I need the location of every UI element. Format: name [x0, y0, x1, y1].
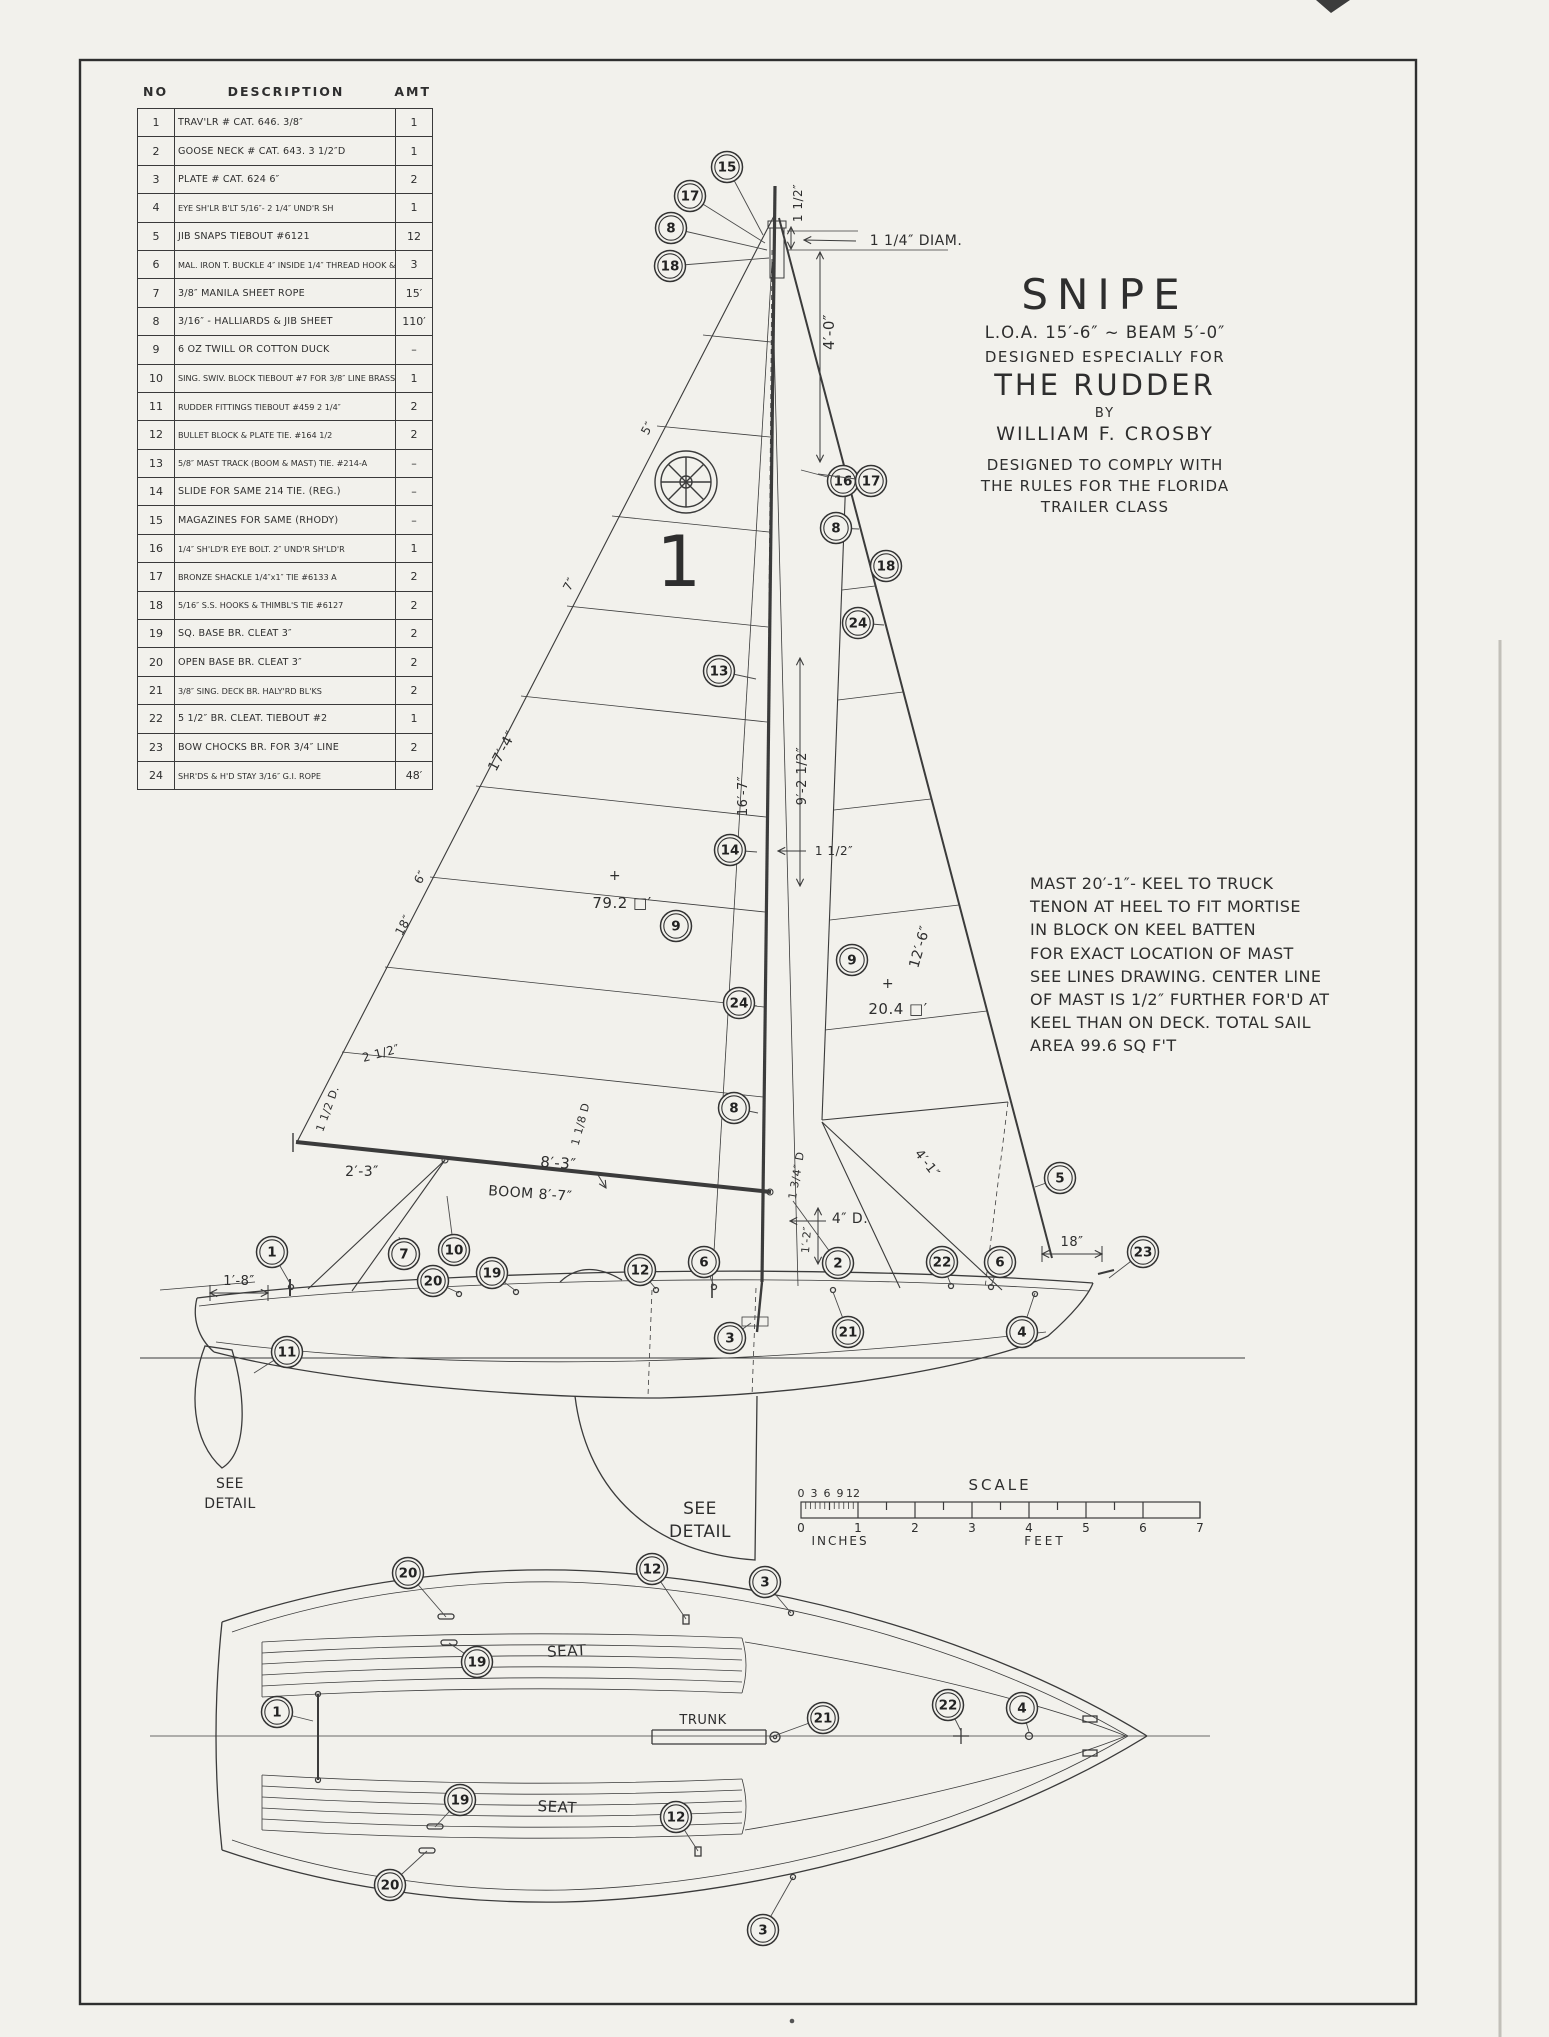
- trunk-plan: [652, 1730, 766, 1744]
- dim-label: SEAT: [547, 1641, 587, 1661]
- part-desc: OPEN BASE BR. CLEAT 3″: [175, 648, 396, 676]
- parts-table-row: 185/16″ S.S. HOOKS & THIMBL'S TIE #61272: [138, 591, 433, 619]
- part-no: 19: [138, 620, 175, 648]
- part-amt: 1: [396, 137, 433, 165]
- dim-label: 20.4 □′: [868, 1000, 927, 1018]
- dim-label: 1 1/2″: [791, 184, 805, 222]
- deck-plan: [150, 1570, 1210, 1902]
- header-amt: AMT: [385, 84, 433, 99]
- callout-19: 19: [477, 1258, 517, 1292]
- dim-label: SEE: [216, 1476, 244, 1492]
- callout-8: 8: [656, 213, 768, 251]
- callout-9: 9: [837, 945, 868, 976]
- part-desc: 5/16″ S.S. HOOKS & THIMBL'S TIE #6127: [175, 591, 396, 619]
- part-amt: –: [396, 449, 433, 477]
- callout-12: 12: [637, 1554, 687, 1620]
- scale-feet-label: FEET: [1000, 1534, 1090, 1548]
- svg-text:19: 19: [483, 1266, 502, 1282]
- parts-table-row: 213/8″ SING. DECK BR. HALY'RD BL'KS2: [138, 676, 433, 704]
- part-amt: 1: [396, 109, 433, 137]
- part-no: 5: [138, 222, 175, 250]
- parts-table-row: 96 OZ TWILL OR COTTON DUCK–: [138, 336, 433, 364]
- parts-table-row: 24SHR'DS & H'D STAY 3/16″ G.I. ROPE48′: [138, 761, 433, 789]
- part-desc: MAGAZINES FOR SAME (RHODY): [175, 506, 396, 534]
- callout-3: 3: [748, 1877, 794, 1946]
- callout-12: 12: [625, 1255, 657, 1290]
- deck-plan-hardware: [419, 1611, 1097, 1880]
- loa-beam: L.O.A. 15′-6″ ~ BEAM 5′-0″: [940, 323, 1270, 342]
- svg-text:15: 15: [718, 160, 737, 176]
- svg-text:5: 5: [1082, 1521, 1090, 1535]
- callout-18: 18: [655, 251, 770, 282]
- part-amt: 15′: [396, 279, 433, 307]
- part-desc: 3/16″ - HALLIARDS & JIB SHEET: [175, 307, 396, 335]
- mast-note: MAST 20′-1″- KEEL TO TRUCK TENON AT HEEL…: [1030, 872, 1415, 1058]
- svg-text:21: 21: [839, 1325, 858, 1341]
- jib-leech: [822, 474, 846, 1120]
- parts-table-row: 73/8″ MANILA SHEET ROPE15′: [138, 279, 433, 307]
- deck-hardware-dots: [289, 1284, 1038, 1297]
- svg-text:14: 14: [721, 843, 740, 859]
- part-amt: 2: [396, 733, 433, 761]
- svg-text:0: 0: [797, 1521, 805, 1535]
- svg-text:2: 2: [833, 1256, 842, 1272]
- svg-text:9: 9: [671, 919, 680, 935]
- part-amt: 1: [396, 364, 433, 392]
- svg-text:8: 8: [729, 1101, 738, 1117]
- callout-7: 7: [389, 1237, 420, 1270]
- callout-17: 17: [675, 181, 766, 244]
- parts-table-row: 1TRAV'LR # CAT. 646. 3/8″1: [138, 109, 433, 137]
- svg-text:11: 11: [278, 1345, 297, 1361]
- svg-text:22: 22: [939, 1698, 958, 1714]
- scan-dot: [790, 2019, 795, 2024]
- scale-ticks: [806, 1502, 1200, 1518]
- part-amt: –: [396, 478, 433, 506]
- part-amt: 110′: [396, 307, 433, 335]
- dim-label: 18″: [392, 912, 414, 937]
- callout-23: 23: [1109, 1237, 1159, 1279]
- part-amt: 1: [396, 534, 433, 562]
- coaming: [560, 1269, 622, 1282]
- svg-text:1: 1: [854, 1521, 862, 1535]
- part-no: 16: [138, 534, 175, 562]
- callout-15: 15: [712, 152, 764, 236]
- part-no: 11: [138, 392, 175, 420]
- part-desc: 1/4″ SH'LD'R EYE BOLT. 2″ UND'R SH'LD'R: [175, 534, 396, 562]
- designed-for: DESIGNED ESPECIALLY FOR: [940, 348, 1270, 366]
- plan-sheet: 03691201234567 1 1/2″1 1/4″ DIAM.4′-0″5″…: [0, 0, 1549, 2037]
- dim-label: 8′-3″: [540, 1153, 577, 1173]
- dim-label: BOOM 8′-7″: [488, 1183, 573, 1205]
- svg-text:0: 0: [798, 1487, 805, 1500]
- seat-planks-top: [262, 1634, 746, 1697]
- svg-text:7: 7: [399, 1247, 408, 1263]
- callout-24: 24: [843, 608, 885, 639]
- part-desc: GOOSE NECK # CAT. 643. 3 1/2″D: [175, 137, 396, 165]
- parts-table-row: 17BRONZE SHACKLE 1/4″x1″ TIE #6133 A2: [138, 563, 433, 591]
- part-amt: –: [396, 336, 433, 364]
- transom: [195, 1298, 214, 1352]
- part-no: 20: [138, 648, 175, 676]
- parts-table-row: 2GOOSE NECK # CAT. 643. 3 1/2″D1: [138, 137, 433, 165]
- callout-24: 24: [724, 988, 758, 1019]
- part-desc: SING. SWIV. BLOCK TIEBOUT #7 FOR 3/8″ LI…: [175, 364, 396, 392]
- parts-table-row: 12BULLET BLOCK & PLATE TIE. #164 1/22: [138, 421, 433, 449]
- magazine-name: THE RUDDER: [940, 368, 1270, 402]
- part-desc: 5 1/2″ BR. CLEAT. TIEBOUT #2: [175, 705, 396, 733]
- dim-label: DETAIL: [669, 1522, 731, 1542]
- mast: [762, 186, 775, 1282]
- svg-text:6: 6: [995, 1255, 1004, 1271]
- parts-table-row: 5JIB SNAPS TIEBOUT #612112: [138, 222, 433, 250]
- svg-text:3: 3: [760, 1575, 769, 1591]
- part-amt: 2: [396, 676, 433, 704]
- parts-table-row: 23BOW CHOCKS BR. FOR 3/4″ LINE2: [138, 733, 433, 761]
- part-amt: 1: [396, 194, 433, 222]
- part-amt: 3: [396, 250, 433, 278]
- svg-text:19: 19: [468, 1655, 487, 1671]
- dim-label: TRUNK: [678, 1713, 726, 1728]
- part-desc: 3/8″ SING. DECK BR. HALY'RD BL'KS: [175, 676, 396, 704]
- part-desc: MAL. IRON T. BUCKLE 4″ INSIDE 1/4″ THREA…: [175, 250, 396, 278]
- callout-14: 14: [715, 835, 758, 866]
- part-desc: 3/8″ MANILA SHEET ROPE: [175, 279, 396, 307]
- callout-3: 3: [715, 1323, 752, 1354]
- dim-label: 1 3/4″ D: [786, 1150, 807, 1200]
- part-no: 3: [138, 165, 175, 193]
- dim-label: +: [609, 868, 621, 884]
- svg-text:12: 12: [667, 1810, 686, 1826]
- dim-label: 12′-6″: [907, 924, 934, 970]
- part-desc: RUDDER FITTINGS TIEBOUT #459 2 1/4″: [175, 392, 396, 420]
- part-desc: BOW CHOCKS BR. FOR 3/4″ LINE: [175, 733, 396, 761]
- part-no: 14: [138, 478, 175, 506]
- part-desc: SLIDE FOR SAME 214 TIE. (REG.): [175, 478, 396, 506]
- svg-text:19: 19: [451, 1793, 470, 1809]
- parts-table-header: NO DESCRIPTION AMT: [137, 84, 433, 99]
- svg-text:24: 24: [730, 996, 749, 1012]
- dim-label: 1 1/2″: [815, 844, 853, 858]
- dim-label: 6″: [411, 868, 430, 886]
- dim-label: 5″: [638, 419, 657, 437]
- svg-text:10: 10: [445, 1243, 464, 1259]
- parts-table-row: 14SLIDE FOR SAME 214 TIE. (REG.)–: [138, 478, 433, 506]
- part-no: 9: [138, 336, 175, 364]
- parts-table-row: 3PLATE # CAT. 624 6″2: [138, 165, 433, 193]
- part-no: 21: [138, 676, 175, 704]
- dim-label: 2 1/2″: [361, 1041, 402, 1064]
- callout-22: 22: [933, 1690, 964, 1732]
- svg-text:3: 3: [968, 1521, 976, 1535]
- dim-label: 2′-3″: [345, 1164, 379, 1180]
- dim-label: 18″: [1061, 1235, 1084, 1250]
- trunk-dashed-aft: [752, 1288, 756, 1396]
- callout-19: 19: [449, 1643, 493, 1678]
- dim-label: 4′-0″: [820, 314, 838, 350]
- svg-text:20: 20: [399, 1566, 418, 1582]
- scale-inches-label: INCHES: [795, 1534, 885, 1548]
- part-desc: BRONZE SHACKLE 1/4″x1″ TIE #6133 A: [175, 563, 396, 591]
- keel-line: [214, 1283, 1093, 1398]
- svg-text:3: 3: [811, 1487, 818, 1500]
- parts-table-row: 4EYE SH'LR B'LT 5/16″- 2 1/4″ UND'R SH1: [138, 194, 433, 222]
- svg-text:18: 18: [661, 259, 680, 275]
- callout-10: 10: [439, 1196, 470, 1266]
- parts-table: 1TRAV'LR # CAT. 646. 3/8″12GOOSE NECK # …: [137, 108, 433, 790]
- part-amt: –: [396, 506, 433, 534]
- svg-text:20: 20: [424, 1274, 443, 1290]
- svg-text:17: 17: [681, 189, 700, 205]
- svg-text:3: 3: [758, 1923, 767, 1939]
- svg-text:7: 7: [1196, 1521, 1204, 1535]
- part-no: 10: [138, 364, 175, 392]
- part-amt: 2: [396, 165, 433, 193]
- part-no: 24: [138, 761, 175, 789]
- part-desc: EYE SH'LR B'LT 5/16″- 2 1/4″ UND'R SH: [175, 194, 396, 222]
- svg-text:12: 12: [631, 1263, 650, 1279]
- part-amt: 48′: [396, 761, 433, 789]
- callout-4: 4: [1007, 1693, 1038, 1733]
- part-desc: 5/8″ MAST TRACK (BOOM & MAST) TIE. #214-…: [175, 449, 396, 477]
- part-desc: JIB SNAPS TIEBOUT #6121: [175, 222, 396, 250]
- svg-text:6: 6: [699, 1255, 708, 1271]
- callout-4: 4: [1007, 1293, 1038, 1348]
- parts-table-row: 11RUDDER FITTINGS TIEBOUT #459 2 1/4″2: [138, 392, 433, 420]
- parts-table-row: 6MAL. IRON T. BUCKLE 4″ INSIDE 1/4″ THRE…: [138, 250, 433, 278]
- boat-name: SNIPE: [940, 270, 1270, 319]
- title-block: SNIPE L.O.A. 15′-6″ ~ BEAM 5′-0″ DESIGNE…: [940, 270, 1270, 518]
- part-amt: 1: [396, 705, 433, 733]
- dim-label: 7″: [560, 575, 579, 593]
- callout-21: 21: [771, 1703, 839, 1738]
- part-amt: 2: [396, 620, 433, 648]
- callout-6: 6: [985, 1247, 1016, 1287]
- part-no: 7: [138, 279, 175, 307]
- part-amt: 2: [396, 563, 433, 591]
- callout-11: 11: [254, 1337, 303, 1374]
- dim-label: 16′-7″: [736, 776, 751, 816]
- part-desc: BULLET BLOCK & PLATE TIE. #164 1/2: [175, 421, 396, 449]
- sail-emblem: [655, 451, 717, 513]
- svg-text:18: 18: [877, 559, 896, 575]
- callout-8: 8: [821, 513, 860, 544]
- part-no: 18: [138, 591, 175, 619]
- part-no: 23: [138, 733, 175, 761]
- part-amt: 2: [396, 392, 433, 420]
- part-no: 15: [138, 506, 175, 534]
- part-no: 6: [138, 250, 175, 278]
- svg-text:23: 23: [1134, 1245, 1153, 1261]
- svg-text:22: 22: [933, 1255, 952, 1271]
- parts-table-row: 19SQ. BASE BR. CLEAT 3″2: [138, 620, 433, 648]
- svg-text:6: 6: [1139, 1521, 1147, 1535]
- part-no: 1: [138, 109, 175, 137]
- parts-table-row: 225 1/2″ BR. CLEAT. TIEBOUT #21: [138, 705, 433, 733]
- svg-text:6: 6: [824, 1487, 831, 1500]
- svg-text:3: 3: [725, 1331, 734, 1347]
- dim-label: 1 1/8 D: [569, 1101, 593, 1147]
- dim-label: SEE: [683, 1499, 717, 1519]
- callout-1: 1: [262, 1697, 314, 1728]
- dim-label: 4′-1″: [911, 1147, 942, 1181]
- svg-text:5: 5: [1055, 1171, 1064, 1187]
- part-no: 8: [138, 307, 175, 335]
- dim-label: DETAIL: [204, 1496, 256, 1512]
- svg-text:9: 9: [837, 1487, 844, 1500]
- part-no: 2: [138, 137, 175, 165]
- jib-foot: [822, 1102, 1008, 1120]
- main-luff: [764, 250, 772, 1186]
- svg-text:21: 21: [814, 1711, 833, 1727]
- part-desc: TRAV'LR # CAT. 646. 3/8″: [175, 109, 396, 137]
- part-no: 4: [138, 194, 175, 222]
- callout-19: 19: [435, 1785, 476, 1828]
- callout-8: 8: [719, 1093, 759, 1124]
- callout-20: 20: [418, 1266, 460, 1297]
- svg-text:2: 2: [911, 1521, 919, 1535]
- parts-table-row: 83/16″ - HALLIARDS & JIB SHEET110′: [138, 307, 433, 335]
- parts-table-row: 10SING. SWIV. BLOCK TIEBOUT #7 FOR 3/8″ …: [138, 364, 433, 392]
- svg-text:24: 24: [849, 616, 868, 632]
- callout-20: 20: [375, 1851, 428, 1901]
- dim-label: 1 1/4″ DIAM.: [870, 233, 963, 249]
- dim-label: 4″ D.: [832, 1211, 868, 1227]
- callout-16: 16: [801, 466, 859, 497]
- part-amt: 2: [396, 648, 433, 676]
- svg-text:12: 12: [643, 1562, 662, 1578]
- svg-text:9: 9: [847, 953, 856, 969]
- dim-label: 79.2 □′: [592, 894, 651, 912]
- scan-corner-mark: [1316, 0, 1350, 13]
- callout-12: 12: [661, 1802, 699, 1852]
- by-label: BY: [940, 406, 1270, 421]
- svg-text:8: 8: [666, 221, 675, 237]
- part-desc: PLATE # CAT. 624 6″: [175, 165, 396, 193]
- dim-label: 9′-2 1/2″: [795, 747, 810, 806]
- part-desc: 6 OZ TWILL OR COTTON DUCK: [175, 336, 396, 364]
- scale-bar: [801, 1502, 1200, 1518]
- dim-label: 1′-8″: [223, 1274, 255, 1289]
- svg-text:1: 1: [272, 1705, 281, 1721]
- svg-text:20: 20: [381, 1878, 400, 1894]
- parts-table-row: 20OPEN BASE BR. CLEAT 3″2: [138, 648, 433, 676]
- part-no: 13: [138, 449, 175, 477]
- callout-1: 1: [257, 1237, 292, 1286]
- svg-text:4: 4: [1017, 1325, 1026, 1341]
- bow-chock: [1098, 1270, 1114, 1274]
- dim-label: +: [882, 976, 894, 992]
- dim-label: 1′-2″: [799, 1226, 814, 1254]
- svg-text:4: 4: [1017, 1701, 1026, 1717]
- scale-title: SCALE: [940, 1476, 1060, 1494]
- part-desc: SQ. BASE BR. CLEAT 3″: [175, 620, 396, 648]
- designer-name: WILLIAM F. CROSBY: [940, 423, 1270, 445]
- part-desc: SHR'DS & H'D STAY 3/16″ G.I. ROPE: [175, 761, 396, 789]
- svg-text:1: 1: [267, 1245, 276, 1261]
- callout-9: 9: [661, 911, 692, 942]
- trunk-dashed-fwd: [648, 1290, 652, 1396]
- part-amt: 12: [396, 222, 433, 250]
- class-rules-note: DESIGNED TO COMPLY WITH THE RULES FOR TH…: [940, 455, 1270, 518]
- part-no: 12: [138, 421, 175, 449]
- header-description: DESCRIPTION: [187, 84, 385, 99]
- svg-text:17: 17: [862, 474, 881, 490]
- callout-5: 5: [1035, 1163, 1076, 1194]
- parts-table-row: 161/4″ SH'LD'R EYE BOLT. 2″ UND'R SH'LD'…: [138, 534, 433, 562]
- part-no: 22: [138, 705, 175, 733]
- svg-text:8: 8: [831, 521, 840, 537]
- part-no: 17: [138, 563, 175, 591]
- callout-21: 21: [833, 1292, 864, 1348]
- part-amt: 2: [396, 421, 433, 449]
- callout-22: 22: [927, 1247, 958, 1286]
- dim-label: 17′-4″: [485, 728, 519, 774]
- plank-seam: [216, 1332, 1046, 1362]
- svg-text:13: 13: [710, 664, 729, 680]
- svg-text:12: 12: [846, 1487, 860, 1500]
- dim-label: 1: [656, 521, 701, 603]
- header-no: NO: [137, 84, 187, 99]
- parts-table-row: 135/8″ MAST TRACK (BOOM & MAST) TIE. #21…: [138, 449, 433, 477]
- rudder: [195, 1346, 242, 1468]
- dim-label: SEAT: [537, 1797, 577, 1817]
- svg-text:4: 4: [1025, 1521, 1033, 1535]
- parts-table-row: 15MAGAZINES FOR SAME (RHODY)–: [138, 506, 433, 534]
- dim-label: 1 1/2 D.: [313, 1084, 342, 1133]
- part-amt: 2: [396, 591, 433, 619]
- mast-below-deck: [757, 1282, 762, 1332]
